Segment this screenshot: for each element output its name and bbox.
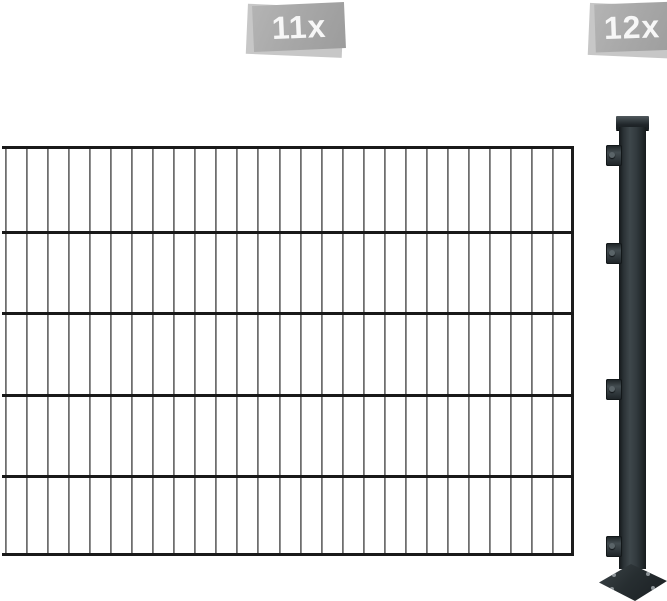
post-clamp <box>606 536 622 557</box>
fence-vertical-bar <box>468 146 470 555</box>
fence-vertical-bar <box>173 146 175 555</box>
fence-vertical-bar <box>447 146 449 555</box>
fence-vertical-bar <box>279 146 281 555</box>
fence-vertical-bar <box>68 146 70 555</box>
fence-vertical-bar <box>510 146 512 555</box>
fence-horizontal-bar <box>2 475 574 478</box>
fence-vertical-bar <box>110 146 112 555</box>
fence-vertical-bar <box>257 146 259 555</box>
fence-vertical-bar <box>26 146 28 555</box>
fence-edge-bar <box>571 146 574 555</box>
product-image: 11x 12x <box>0 0 667 600</box>
post-quantity-label: 12x <box>594 2 667 53</box>
bolt-hole <box>612 573 616 577</box>
fence-vertical-bar <box>405 146 407 555</box>
panel-quantity-badge: 11x <box>253 4 345 50</box>
post-clamp <box>606 243 622 264</box>
post-base-plate <box>599 564 667 601</box>
fence-vertical-bar <box>384 146 386 555</box>
fence-horizontal-bar <box>2 231 574 234</box>
fence-vertical-bar <box>300 146 302 555</box>
bolt-hole <box>646 572 650 576</box>
fence-vertical-bar <box>489 146 491 555</box>
fence-vertical-bar <box>89 146 91 555</box>
post-body <box>619 127 646 569</box>
fence-vertical-bar <box>531 146 533 555</box>
fence-vertical-bar <box>194 146 196 555</box>
fence-horizontal-bar <box>2 553 574 556</box>
fence-vertical-bar <box>342 146 344 555</box>
fence-vertical-bar <box>236 146 238 555</box>
fence-vertical-bar <box>215 146 217 555</box>
fence-vertical-bar <box>47 146 49 555</box>
fence-vertical-bar <box>321 146 323 555</box>
post-clamp <box>606 145 622 166</box>
post-clamp <box>606 379 622 400</box>
fence-horizontal-bar <box>2 146 574 149</box>
fence-vertical-bar <box>363 146 365 555</box>
post-quantity-badge: 12x <box>595 3 667 51</box>
fence-horizontal-bar <box>2 312 574 315</box>
bolt-hole <box>651 586 655 590</box>
fence-vertical-bar <box>552 146 554 555</box>
fence-vertical-bar <box>131 146 133 555</box>
panel-quantity-label: 11x <box>252 2 346 52</box>
bolt-hole <box>610 587 614 591</box>
fence-horizontal-bar <box>2 394 574 397</box>
fence-vertical-bar <box>152 146 154 555</box>
fence-vertical-bar <box>5 146 7 555</box>
fence-vertical-bar <box>426 146 428 555</box>
